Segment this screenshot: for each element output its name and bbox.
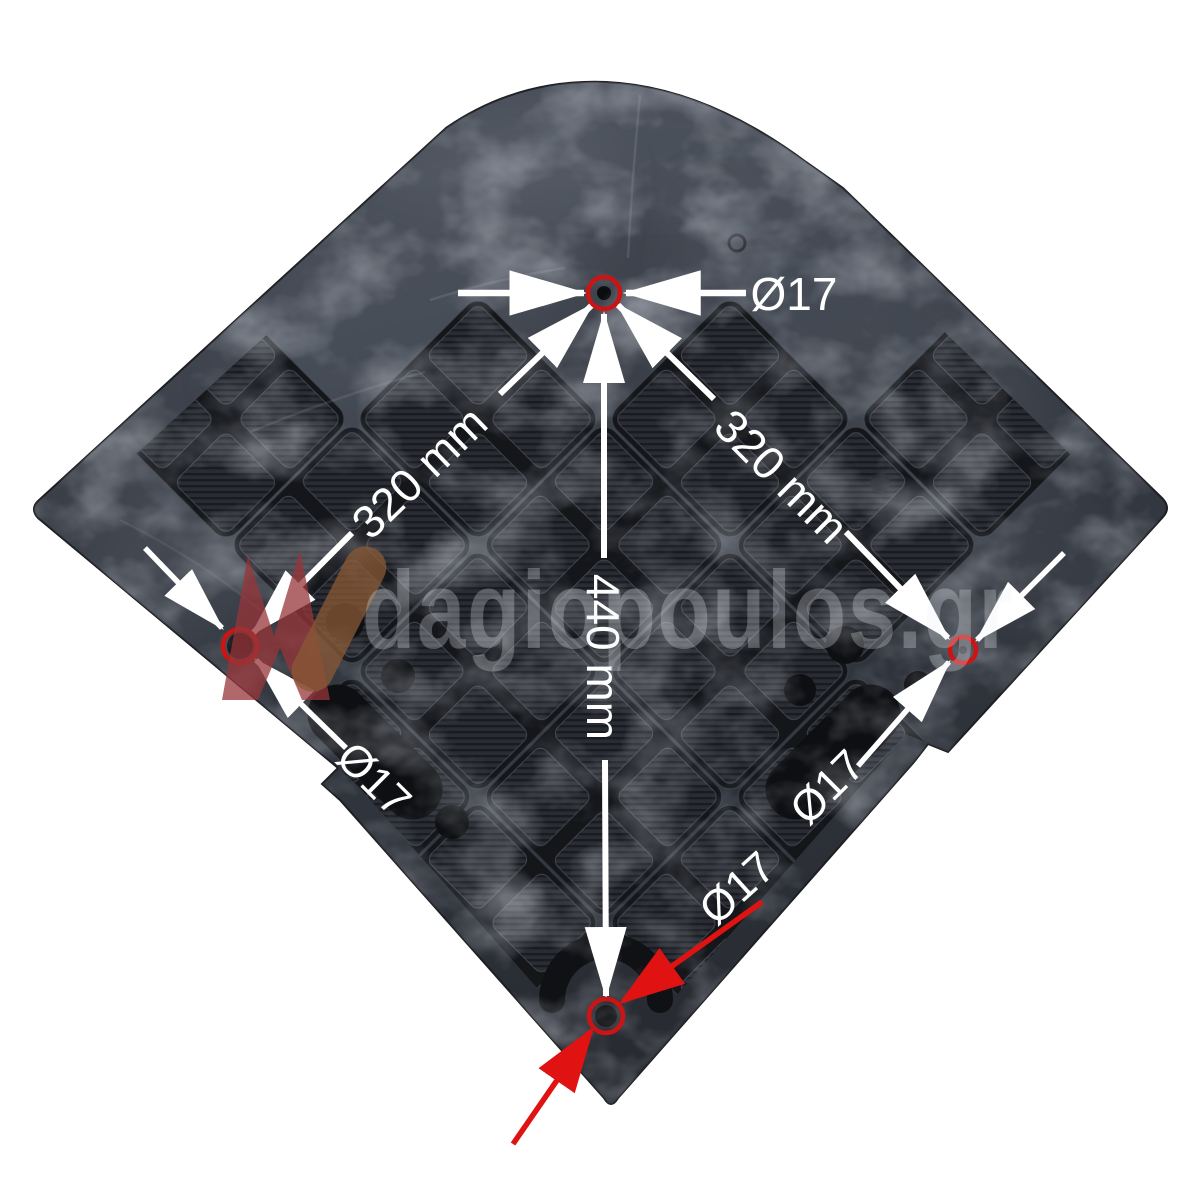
annotated-product-photo: Ø17 320 mm 320 mm 440 mm Ø17 Ø17 Ø17 dag… — [0, 0, 1200, 1200]
dimension-line-440-b — [605, 760, 606, 996]
watermark-text: dagiopoulos.gr — [362, 549, 1014, 672]
photo-canvas: Ø17 320 mm 320 mm 440 mm Ø17 Ø17 Ø17 dag… — [0, 0, 1200, 1200]
pointer-arrow-red-lower — [513, 1031, 591, 1144]
diameter-label-top: Ø17 — [751, 268, 838, 320]
